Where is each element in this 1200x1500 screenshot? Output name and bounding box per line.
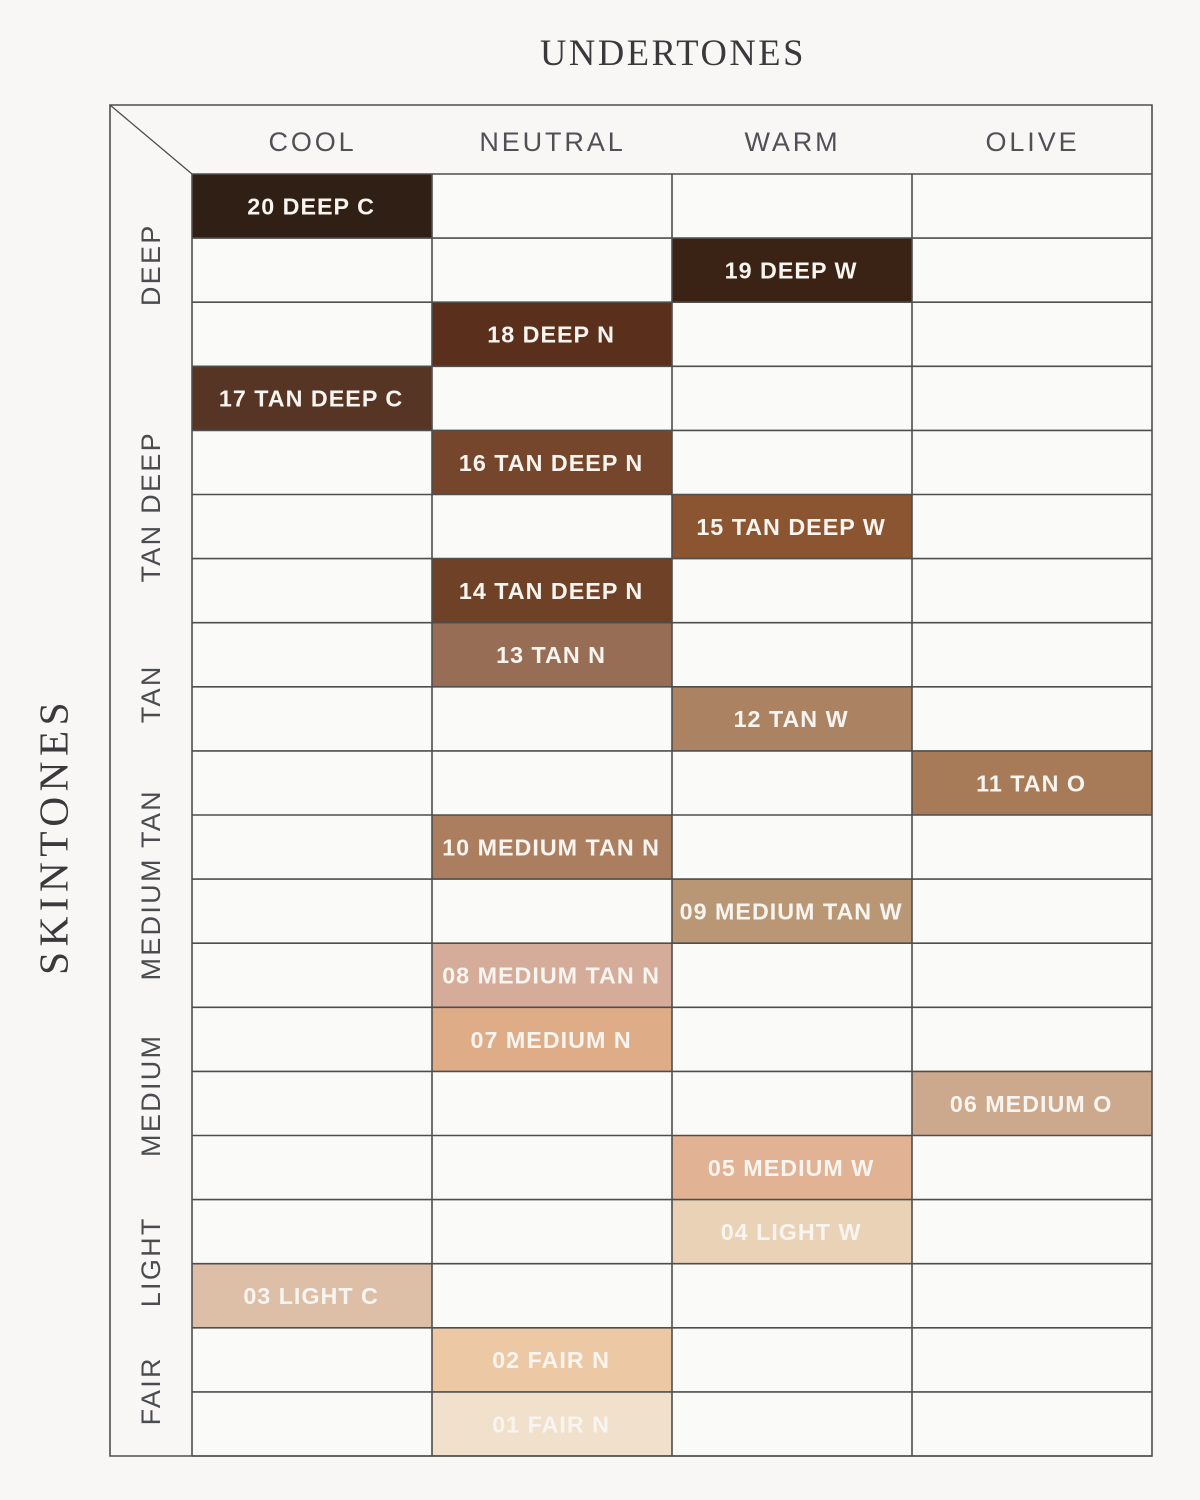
svg-text:NEUTRAL: NEUTRAL — [479, 127, 625, 157]
svg-text:02 FAIR N: 02 FAIR N — [492, 1347, 610, 1373]
svg-text:LIGHT: LIGHT — [136, 1216, 166, 1307]
svg-text:OLIVE: OLIVE — [985, 127, 1079, 157]
svg-text:12 TAN W: 12 TAN W — [734, 706, 849, 732]
svg-text:04 LIGHT W: 04 LIGHT W — [721, 1219, 862, 1245]
svg-text:18 DEEP N: 18 DEEP N — [487, 322, 615, 348]
svg-text:13 TAN N: 13 TAN N — [496, 642, 606, 668]
svg-text:COOL: COOL — [268, 127, 356, 157]
svg-text:09 MEDIUM TAN W: 09 MEDIUM TAN W — [680, 899, 903, 925]
svg-text:TAN: TAN — [136, 664, 166, 723]
svg-text:14 TAN DEEP N: 14 TAN DEEP N — [459, 578, 643, 604]
svg-text:01 FAIR N: 01 FAIR N — [492, 1411, 610, 1437]
svg-text:SKINTONES: SKINTONES — [31, 697, 77, 975]
svg-text:06 MEDIUM O: 06 MEDIUM O — [950, 1091, 1112, 1117]
svg-text:11 TAN O: 11 TAN O — [976, 770, 1086, 796]
svg-text:10 MEDIUM TAN N: 10 MEDIUM TAN N — [442, 834, 660, 860]
svg-text:03 LIGHT C: 03 LIGHT C — [243, 1283, 379, 1309]
svg-text:MEDIUM: MEDIUM — [136, 1034, 166, 1157]
svg-text:08 MEDIUM TAN N: 08 MEDIUM TAN N — [442, 963, 660, 989]
svg-text:DEEP: DEEP — [136, 223, 166, 306]
svg-text:FAIR: FAIR — [136, 1356, 166, 1425]
svg-text:07 MEDIUM N: 07 MEDIUM N — [471, 1027, 632, 1053]
svg-text:16 TAN DEEP N: 16 TAN DEEP N — [459, 450, 643, 476]
svg-text:UNDERTONES: UNDERTONES — [540, 32, 806, 73]
svg-text:17 TAN DEEP C: 17 TAN DEEP C — [219, 386, 403, 412]
svg-text:05 MEDIUM W: 05 MEDIUM W — [708, 1155, 874, 1181]
svg-text:15 TAN DEEP W: 15 TAN DEEP W — [696, 514, 886, 540]
svg-text:TAN DEEP: TAN DEEP — [136, 431, 166, 582]
svg-text:20 DEEP C: 20 DEEP C — [247, 194, 375, 220]
svg-text:19 DEEP W: 19 DEEP W — [725, 258, 858, 284]
svg-text:WARM: WARM — [744, 127, 840, 157]
svg-text:MEDIUM TAN: MEDIUM TAN — [136, 789, 166, 981]
